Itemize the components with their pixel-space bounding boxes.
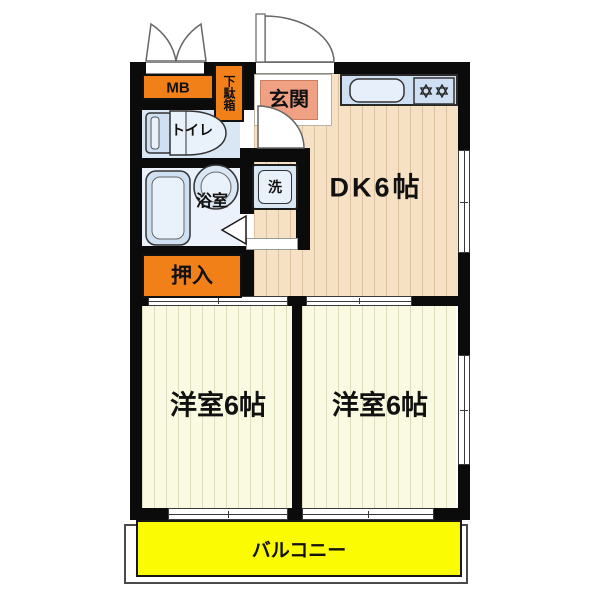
entrance-door-opening <box>256 62 334 74</box>
entrance-door-arc-icon <box>265 16 334 62</box>
washroom-threshold <box>246 238 298 250</box>
bedroom-left-label: 洋室6帖 <box>170 393 266 420</box>
floor-plan: MB 下駄箱 玄関 トイレ 浴室 洗 DK6帖 押入 洋室6帖 洋室6帖 バルコ… <box>0 0 600 600</box>
bedroom-right-window <box>458 355 470 465</box>
balcony-label: バルコニー <box>252 542 347 561</box>
shoe-cabinet-label: 下駄箱 <box>223 75 235 111</box>
balcony-window-left <box>168 508 288 520</box>
mb-label: MB <box>166 81 189 96</box>
balcony-window-right <box>302 508 434 520</box>
mb-door-opening <box>146 62 204 74</box>
toilet-label: トイレ <box>171 123 213 137</box>
entrance-label: 玄関 <box>269 90 309 110</box>
mb-door-right-icon <box>176 24 206 61</box>
wall-left <box>130 62 142 520</box>
wall-washroom-right <box>296 148 310 250</box>
dk-label: DK6帖 <box>329 175 422 202</box>
entrance-door-leaf-icon <box>256 14 265 62</box>
washer-label: 洗 <box>268 180 282 194</box>
bathroom-label: 浴室 <box>196 194 228 210</box>
wall-toilet-bath <box>130 158 254 168</box>
bedroom-right-label: 洋室6帖 <box>332 393 428 420</box>
dk-window <box>458 150 470 253</box>
wall-rooms-middle <box>292 296 302 520</box>
mb-door-left-icon <box>146 24 176 61</box>
closet-label: 押入 <box>171 266 213 287</box>
sliding-door-bedroom-right <box>306 296 412 306</box>
kitchen-counter <box>340 74 458 106</box>
